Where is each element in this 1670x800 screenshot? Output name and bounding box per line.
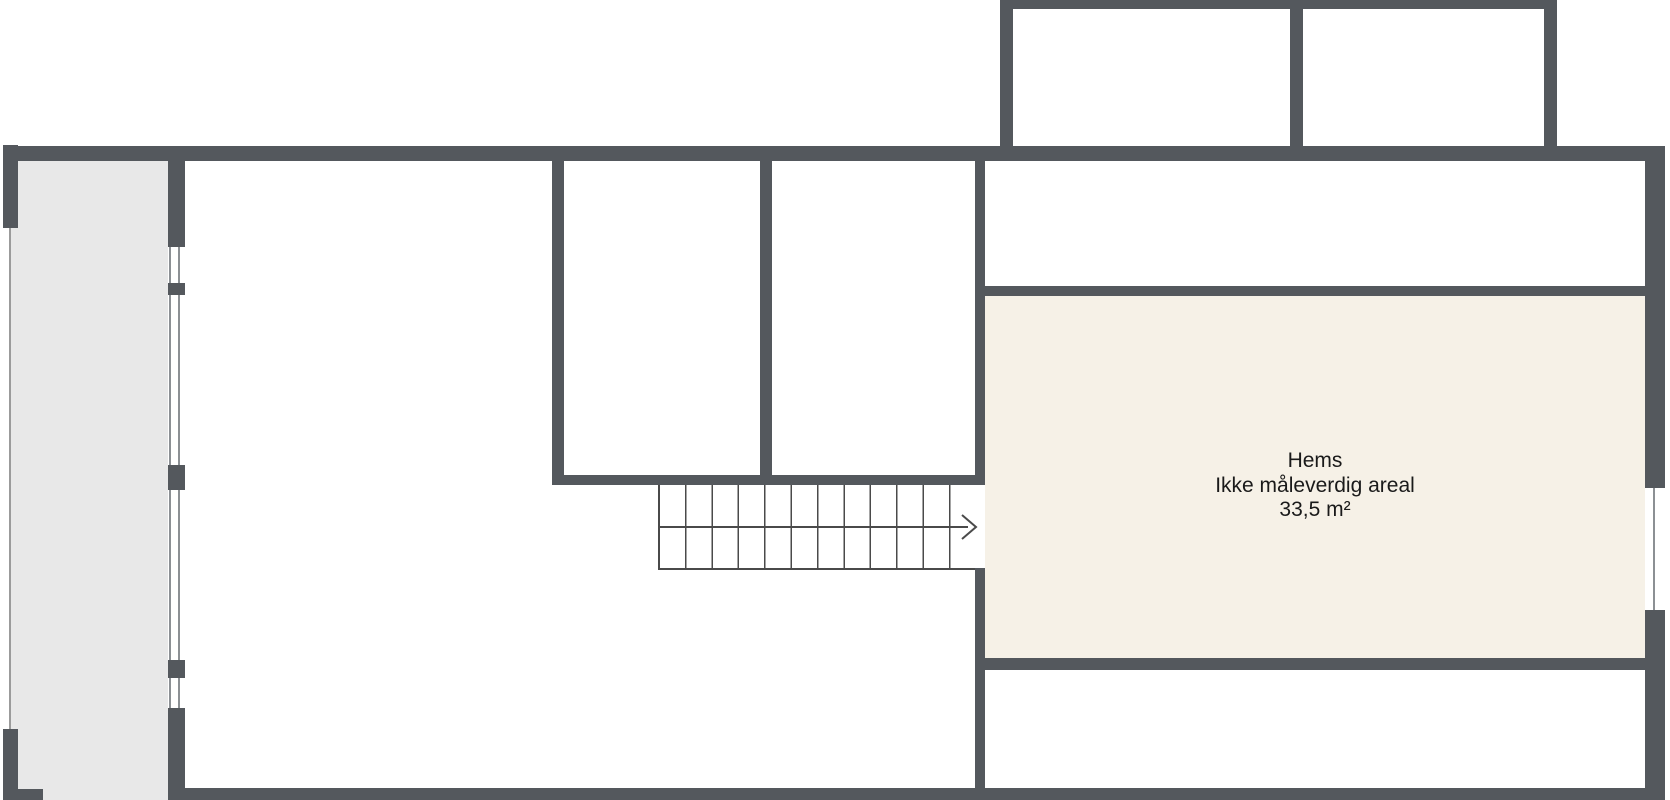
outer-wall-stub-top-left [3,145,18,228]
partition-wall-rooms-bottom [552,475,985,485]
outer-wall-top [3,146,1665,161]
hems-room-area-value: 33,5 m² [1015,498,1615,523]
window-left-3 [168,490,185,660]
floor-plan: Hems Ikke måleverdig areal 33,5 m² [0,0,1670,800]
hems-room-note: Ikke måleverdig areal [1015,474,1615,499]
partition-wall-room-divider [760,158,772,477]
staircase [658,485,975,570]
balcony-area [11,161,168,800]
window-right-wall [1645,488,1665,610]
hems-wall-top [975,286,1645,296]
hems-wall-bottom [975,658,1645,670]
partition-wall-mid-lower [975,568,985,788]
dormer-wall-left [1000,0,1013,146]
window-left-1 [168,247,185,283]
window-left-4 [168,678,185,708]
window-wall-left [168,158,185,800]
partition-wall-mid-upper [975,158,985,475]
outer-wall-bottom [168,788,1665,800]
window-left-2 [168,295,185,465]
outer-wall-stub-bottom-left-foot [3,789,43,800]
outer-wall-right [1645,146,1665,800]
stair-walk-line [660,485,980,570]
dormer-wall-top [1000,0,1557,9]
dormer-wall-right [1544,0,1557,146]
hems-room-label: Hems Ikke måleverdig areal 33,5 m² [1015,449,1615,523]
partition-wall-room-a-left [552,158,564,477]
dormer-wall-divider [1290,0,1303,146]
hems-room-name: Hems [1015,449,1615,474]
